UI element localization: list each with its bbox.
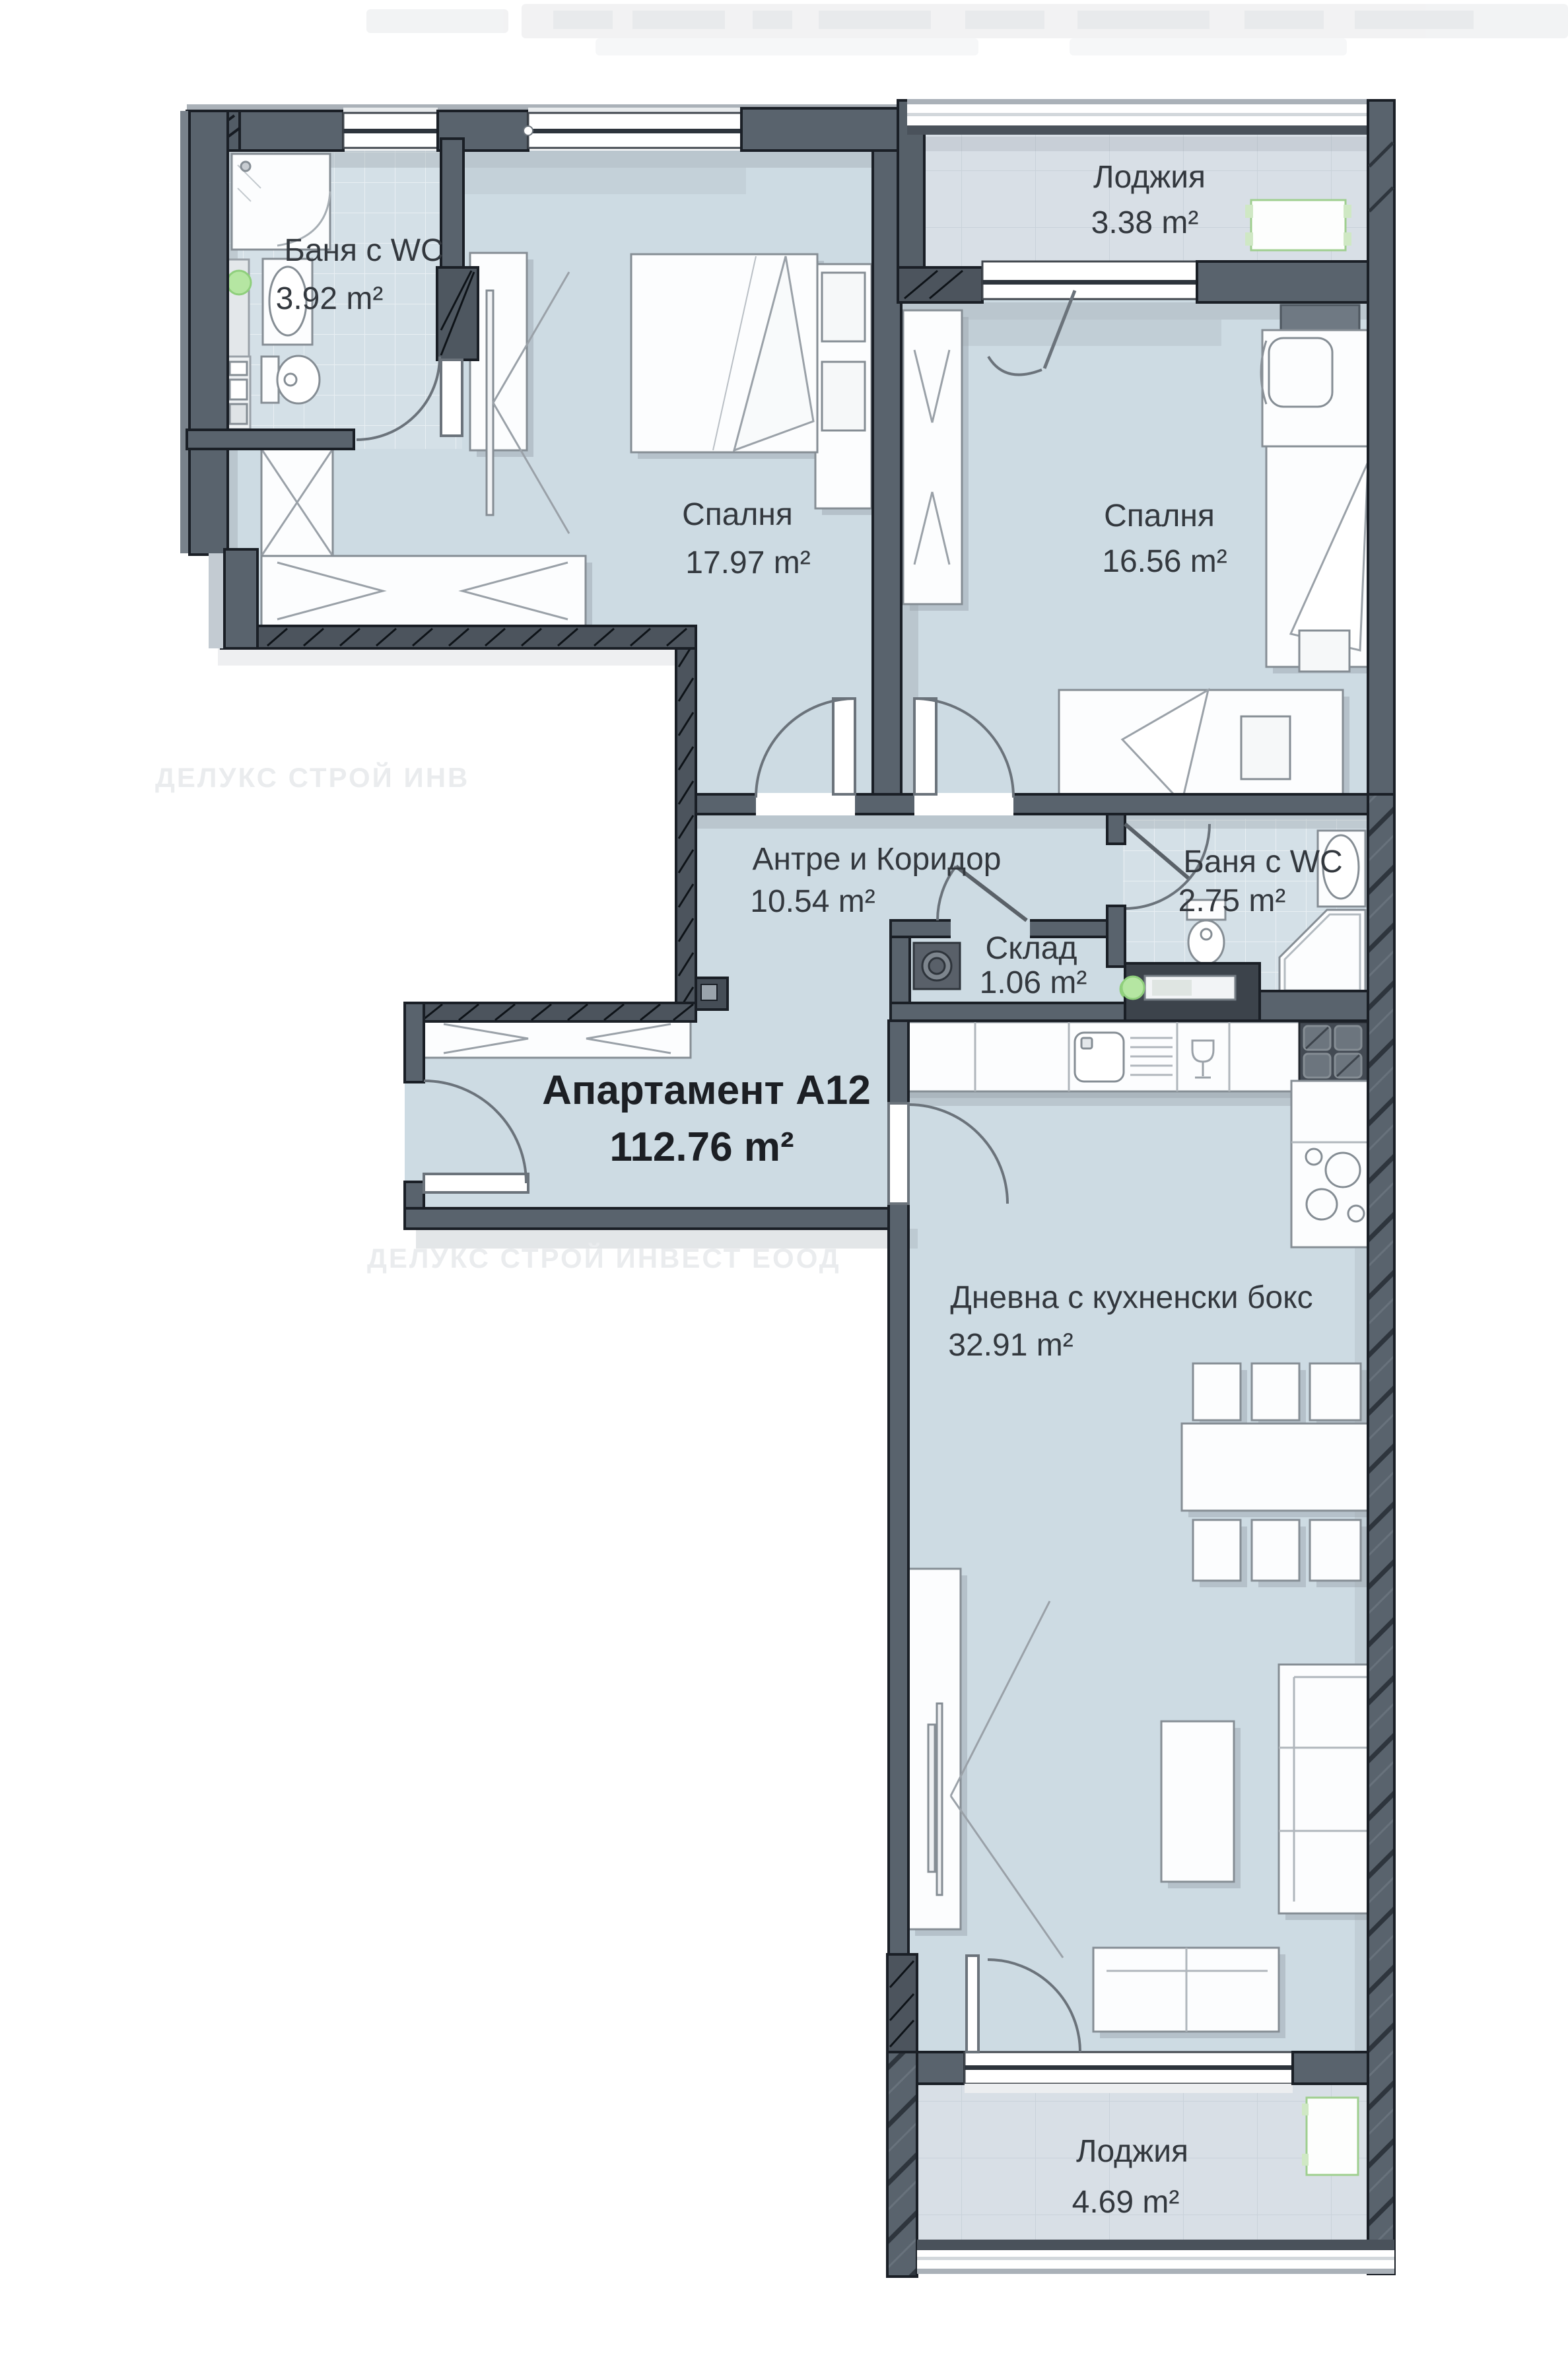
svg-text:Лоджия: Лоджия	[1093, 160, 1206, 195]
svg-text:112.76 m²: 112.76 m²	[609, 1124, 794, 1170]
svg-text:3.38 m²: 3.38 m²	[1091, 205, 1199, 240]
svg-text:Апартамент А12: Апартамент А12	[542, 1068, 871, 1113]
svg-text:2.75 m²: 2.75 m²	[1178, 883, 1286, 918]
svg-text:Дневна с кухненски бокс: Дневна с кухненски бокс	[950, 1280, 1312, 1315]
svg-text:Баня с WC: Баня с WC	[1183, 844, 1342, 879]
svg-text:Лоджия: Лоджия	[1076, 2134, 1188, 2169]
svg-text:Антре и Коридор: Антре и Коридор	[753, 842, 1002, 877]
svg-text:17.97 m²: 17.97 m²	[685, 545, 810, 580]
svg-text:10.54 m²: 10.54 m²	[750, 884, 875, 919]
svg-text:ДЕЛУКС СТРОЙ ИНВ: ДЕЛУКС СТРОЙ ИНВ	[155, 761, 469, 793]
svg-text:Склад: Склад	[986, 931, 1077, 966]
svg-text:ДЕЛУКС СТРОЙ ИНВЕСТ ЕООД: ДЕЛУКС СТРОЙ ИНВЕСТ ЕООД	[367, 1242, 841, 1274]
svg-text:1.06 m²: 1.06 m²	[980, 965, 1087, 1000]
svg-text:4.69 m²: 4.69 m²	[1072, 2185, 1180, 2220]
svg-text:3.92 m²: 3.92 m²	[276, 281, 384, 316]
svg-text:16.56 m²: 16.56 m²	[1102, 544, 1227, 579]
svg-text:Спалня: Спалня	[1104, 498, 1215, 533]
svg-text:32.91 m²: 32.91 m²	[948, 1328, 1073, 1363]
svg-text:Спалня: Спалня	[682, 497, 793, 532]
svg-text:Баня с WC: Баня с WC	[284, 233, 443, 268]
